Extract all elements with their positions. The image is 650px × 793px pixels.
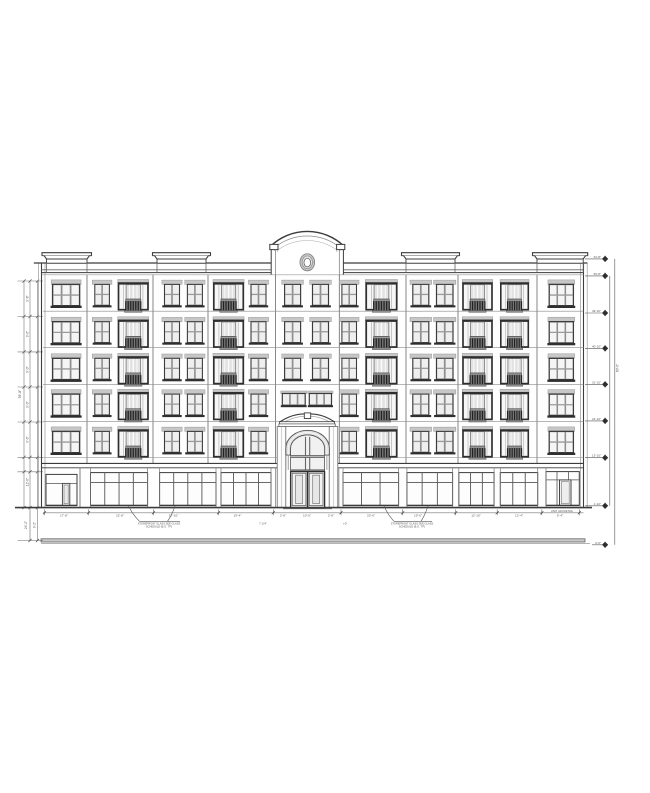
svg-text:9'-0": 9'-0" — [26, 436, 30, 442]
svg-text:0'-0": 0'-0" — [595, 541, 601, 545]
svg-text:12'-0": 12'-0" — [26, 478, 30, 486]
svg-text:59'-8": 59'-8" — [18, 389, 22, 398]
svg-text:60'-0": 60'-0" — [616, 364, 620, 372]
svg-text:UNIT 100 RETAIL: UNIT 100 RETAIL — [551, 509, 574, 513]
svg-text:1'-10": 1'-10" — [594, 502, 601, 506]
svg-text:5'-4": 5'-4" — [557, 513, 563, 517]
svg-text:22'-8": 22'-8" — [116, 513, 124, 517]
svg-text:24'-2": 24'-2" — [24, 521, 28, 529]
svg-text:64'-8": 64'-8" — [594, 255, 601, 259]
svg-text:19'-4": 19'-4" — [234, 513, 242, 517]
svg-text:22'-10": 22'-10" — [592, 417, 601, 421]
svg-text:13'-10": 13'-10" — [592, 454, 601, 458]
svg-text:9'-2": 9'-2" — [32, 522, 36, 528]
svg-text:9'-8": 9'-8" — [26, 295, 30, 301]
svg-text:2'-8": 2'-8" — [328, 513, 334, 517]
svg-text:20'-6": 20'-6" — [367, 513, 375, 517]
svg-text:12'-4": 12'-4" — [515, 513, 523, 517]
svg-text:9'-0": 9'-0" — [26, 366, 30, 372]
svg-text:SCHEDULE (B.O. 7'P): SCHEDULE (B.O. 7'P) — [146, 524, 172, 528]
svg-text:7 1/4": 7 1/4" — [259, 522, 267, 526]
svg-text:59'-8": 59'-8" — [594, 272, 601, 276]
svg-text:17'-8": 17'-8" — [60, 513, 68, 517]
svg-text:12'-10": 12'-10" — [471, 513, 481, 517]
svg-text:10'-0": 10'-0" — [303, 513, 311, 517]
svg-text:19'-0": 19'-0" — [414, 513, 422, 517]
svg-text:31'-10": 31'-10" — [592, 380, 601, 384]
svg-text:49'-10": 49'-10" — [592, 309, 601, 313]
svg-text:40'-10": 40'-10" — [592, 344, 601, 348]
svg-text:2'-8": 2'-8" — [280, 513, 286, 517]
svg-text:9'-0": 9'-0" — [26, 401, 30, 407]
svg-text:+0': +0' — [343, 522, 347, 526]
svg-text:SCHEDULE (B.O. 7'P): SCHEDULE (B.O. 7'P) — [399, 524, 425, 528]
svg-text:9'-0": 9'-0" — [26, 331, 30, 337]
